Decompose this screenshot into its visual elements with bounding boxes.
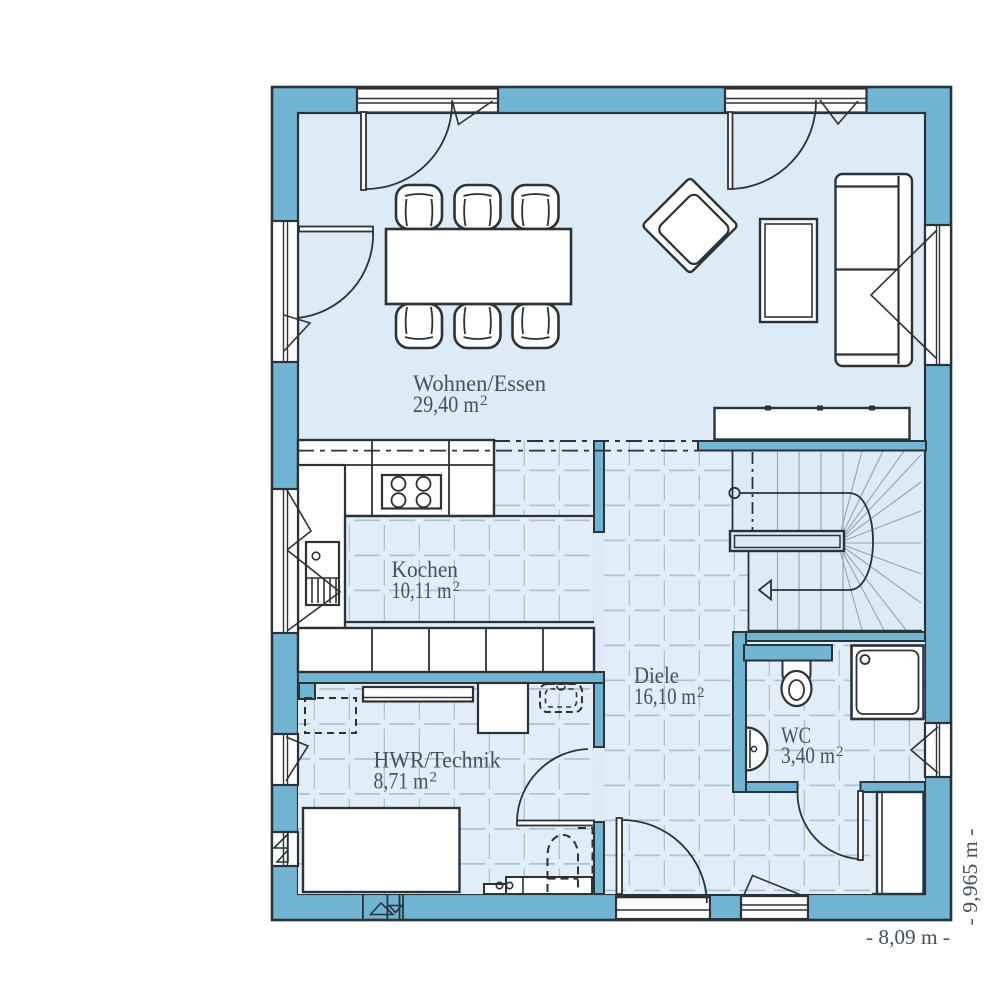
svg-text:2: 2 [836, 744, 844, 760]
svg-text:- 9,965 m -: - 9,965 m - [958, 829, 982, 926]
svg-text:29,40 m: 29,40 m [413, 392, 479, 417]
svg-text:10,11 m: 10,11 m [392, 578, 452, 603]
svg-text:8,71 m: 8,71 m [374, 769, 429, 794]
svg-text:16,10 m: 16,10 m [634, 684, 696, 709]
svg-text:2: 2 [697, 685, 705, 701]
svg-text:2: 2 [430, 770, 438, 786]
svg-text:2: 2 [480, 393, 488, 409]
svg-text:2: 2 [453, 579, 461, 595]
svg-text:- 8,09 m -: - 8,09 m - [866, 925, 950, 949]
svg-text:3,40 m: 3,40 m [781, 743, 835, 768]
